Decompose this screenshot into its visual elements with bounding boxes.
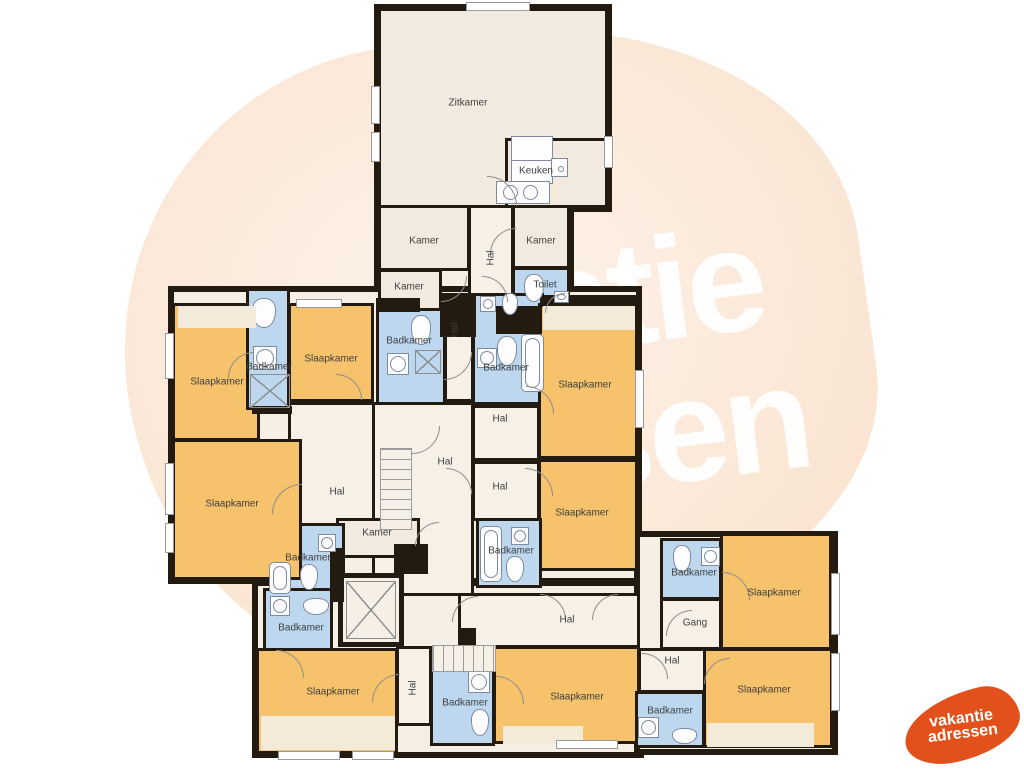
room-label: Hal xyxy=(408,680,419,695)
room-label: Hal xyxy=(492,414,507,425)
room-label: Kamer xyxy=(394,282,423,293)
room-label: Hal xyxy=(492,482,507,493)
room-label: Slaapkamer xyxy=(205,499,258,510)
room-label: Hal xyxy=(450,322,461,337)
room-label: Badkamer xyxy=(386,336,432,347)
room-label: Hal xyxy=(437,457,452,468)
room-label: Hal xyxy=(486,250,497,265)
room-label: Badkamer xyxy=(278,623,324,634)
room-label: Slaapkamer xyxy=(304,354,357,365)
logo-text: vakantie adressen xyxy=(899,685,1024,767)
room-label: Hal xyxy=(664,656,679,667)
room-label: Gang xyxy=(683,618,707,629)
room-label: Zitkamer xyxy=(449,98,488,109)
room-label: Badkamer xyxy=(488,546,534,557)
room-label: Badkamer xyxy=(647,706,693,717)
floorplan-canvas: vakantie adressen ZitkamerKeukenKamerKam… xyxy=(0,0,1024,768)
room-label: Slaapkamer xyxy=(558,380,611,391)
room-label: Slaapkamer xyxy=(190,377,243,388)
room-label: Toilet xyxy=(533,280,556,291)
room-label: Slaapkamer xyxy=(737,685,790,696)
room-label: Badkamer xyxy=(246,362,292,373)
room-label: Kamer xyxy=(409,236,438,247)
room-label: Badkamer xyxy=(483,363,529,374)
room-label: Badkamer xyxy=(442,698,488,709)
vakantieadressen-logo: vakantie adressen xyxy=(903,692,1021,760)
room-label: Keuken xyxy=(519,166,553,177)
room-label: Slaapkamer xyxy=(306,687,359,698)
room-label: Kamer xyxy=(362,528,391,539)
room-label: Slaapkamer xyxy=(747,588,800,599)
plan-labels: ZitkamerKeukenKamerKamerHalKamerToiletSl… xyxy=(0,0,1024,768)
room-label: Kamer xyxy=(526,236,555,247)
room-label: Badkamer xyxy=(285,553,331,564)
room-label: Hal xyxy=(329,487,344,498)
room-label: Hal xyxy=(559,615,574,626)
room-label: Slaapkamer xyxy=(555,508,608,519)
room-label: Slaapkamer xyxy=(550,692,603,703)
room-label: Badkamer xyxy=(671,568,717,579)
